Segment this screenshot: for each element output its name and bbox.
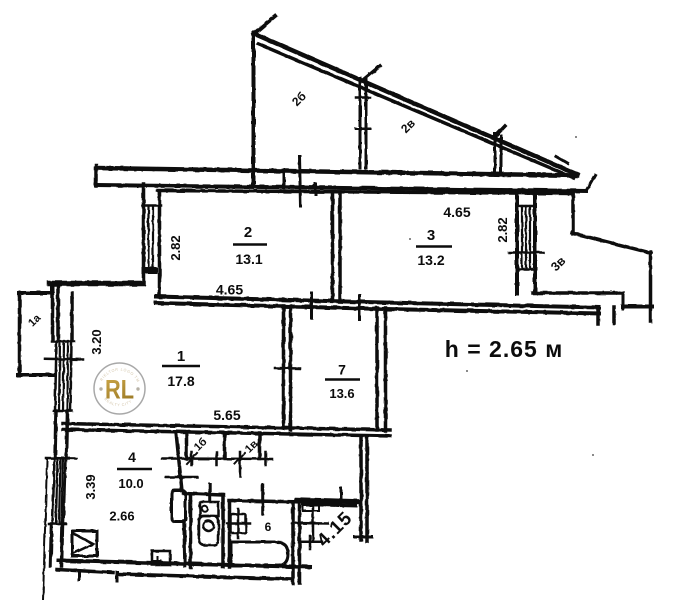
svg-text:5.65: 5.65 <box>213 407 240 423</box>
svg-text:1: 1 <box>177 348 185 365</box>
svg-text:2: 2 <box>244 224 252 241</box>
svg-text:17.8: 17.8 <box>167 373 194 389</box>
svg-text:RL: RL <box>105 375 134 405</box>
svg-text:3: 3 <box>427 227 435 244</box>
svg-text:6: 6 <box>265 520 272 534</box>
svg-text:h = 2.65 м: h = 2.65 м <box>445 336 563 362</box>
svg-text:7: 7 <box>338 362 346 378</box>
svg-text:4.65: 4.65 <box>216 282 243 298</box>
svg-text:2.66: 2.66 <box>109 509 134 524</box>
svg-text:10.0: 10.0 <box>118 476 143 491</box>
svg-text:2.82: 2.82 <box>495 217 510 242</box>
svg-text:4: 4 <box>128 449 136 465</box>
svg-text:3.39: 3.39 <box>83 474 98 499</box>
svg-text:13.2: 13.2 <box>417 252 444 268</box>
svg-text:2.82: 2.82 <box>168 235 183 260</box>
svg-text:13.6: 13.6 <box>329 386 354 401</box>
svg-text:3.20: 3.20 <box>89 329 104 354</box>
svg-text:4.65: 4.65 <box>443 204 470 220</box>
